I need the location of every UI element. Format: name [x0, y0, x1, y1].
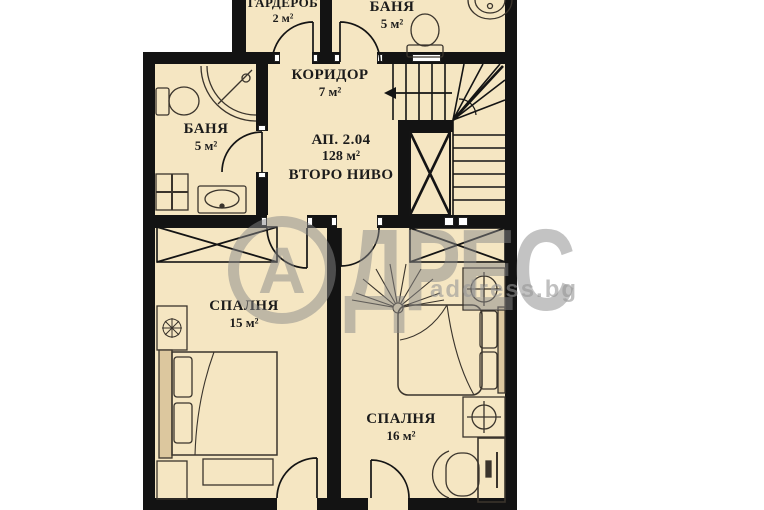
door-jamb — [274, 54, 280, 62]
door-jamb — [331, 217, 337, 226]
label-room-bedroom-left: СПАЛНЯ 15 м² — [209, 297, 278, 331]
wall-segment — [398, 122, 410, 215]
wall-segment — [143, 52, 280, 64]
window-marker — [412, 54, 441, 62]
floorplan-canvas: ГАРДЕРОБ 2 м² БАНЯ 5 м² КОРИДОР 7 м² БАН… — [0, 0, 764, 510]
apartment-id: АП. 2.04 — [289, 131, 394, 149]
wall-segment — [505, 0, 517, 510]
room-area: 5 м² — [184, 138, 229, 154]
room-name: КОРИДОР — [292, 66, 369, 84]
wall-segment — [256, 64, 268, 131]
wall-segment — [377, 52, 505, 64]
door-jamb — [307, 217, 313, 226]
door-jamb — [258, 172, 266, 178]
room-name: ГАРДЕРОБ — [248, 0, 318, 11]
window-marker — [458, 217, 468, 226]
wall-segment — [143, 215, 267, 228]
room-area: 16 м² — [366, 428, 435, 444]
wall-segment — [256, 172, 268, 215]
room-area: 15 м² — [209, 315, 278, 331]
label-room-bath-top: БАНЯ 5 м² — [370, 0, 415, 32]
door-jamb — [377, 54, 383, 62]
room-area: 7 м² — [292, 84, 369, 100]
label-room-wardrobe: ГАРДЕРОБ 2 м² — [248, 0, 318, 25]
wall-segment — [143, 52, 155, 510]
window-marker — [444, 217, 454, 226]
room-area: 2 м² — [248, 11, 318, 26]
wall-segment — [327, 228, 341, 498]
label-room-bedroom-right: СПАЛНЯ 16 м² — [366, 410, 435, 444]
door-jamb — [312, 54, 318, 62]
wall-segment — [408, 498, 517, 510]
room-name: БАНЯ — [370, 0, 415, 16]
door-jamb — [334, 54, 340, 62]
room-name: БАНЯ — [184, 120, 229, 138]
apartment-area: 128 м² — [289, 149, 394, 166]
room-name: СПАЛНЯ — [209, 297, 278, 315]
apartment-level: ВТОРО НИВО — [289, 166, 394, 184]
door-jamb — [377, 217, 383, 226]
door-jamb — [258, 125, 266, 131]
label-room-corridor: КОРИДОР 7 м² — [292, 66, 369, 100]
apartment-info: АП. 2.04 128 м² ВТОРО НИВО — [289, 131, 394, 184]
wall-segment — [398, 120, 453, 132]
wall-segment — [143, 498, 277, 510]
room-area: 5 м² — [370, 16, 415, 32]
wall-segment — [317, 498, 368, 510]
room-name: СПАЛНЯ — [366, 410, 435, 428]
label-room-bath-left: БАНЯ 5 м² — [184, 120, 229, 154]
door-jamb — [261, 217, 267, 226]
